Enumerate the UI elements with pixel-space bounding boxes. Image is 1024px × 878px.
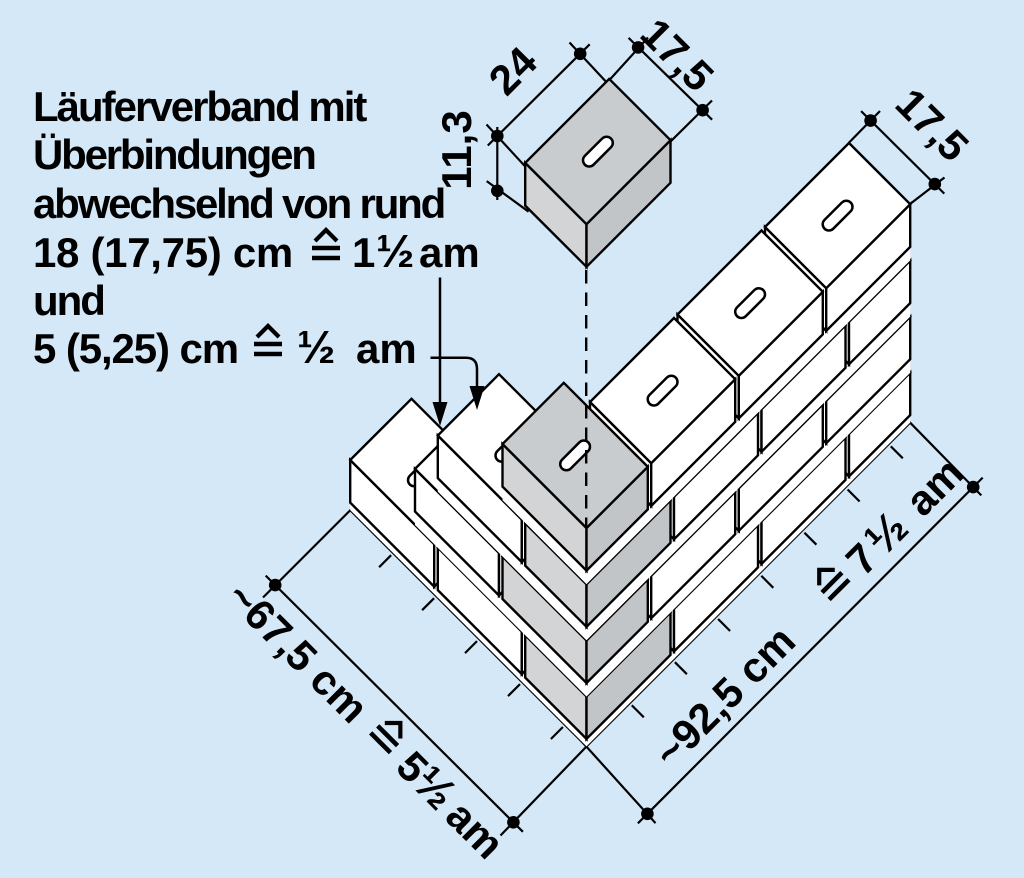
svg-text:Überbindungen: Überbindungen (33, 131, 315, 178)
svg-text:abwechselnd von rund: abwechselnd von rund (33, 180, 444, 227)
svg-text:Läuferverband mit: Läuferverband mit (33, 83, 367, 130)
svg-text:5 (5,25) cm: 5 (5,25) cm (33, 325, 238, 372)
svg-text:18 (17,75) cm: 18 (17,75) cm (33, 229, 293, 276)
svg-text:½: ½ (376, 225, 414, 277)
svg-text:und: und (33, 277, 104, 324)
svg-text:am: am (356, 325, 417, 372)
svg-text:11,3: 11,3 (433, 110, 480, 189)
svg-text:1: 1 (352, 229, 375, 276)
svg-text:am: am (419, 229, 480, 276)
svg-text:½: ½ (297, 321, 335, 373)
